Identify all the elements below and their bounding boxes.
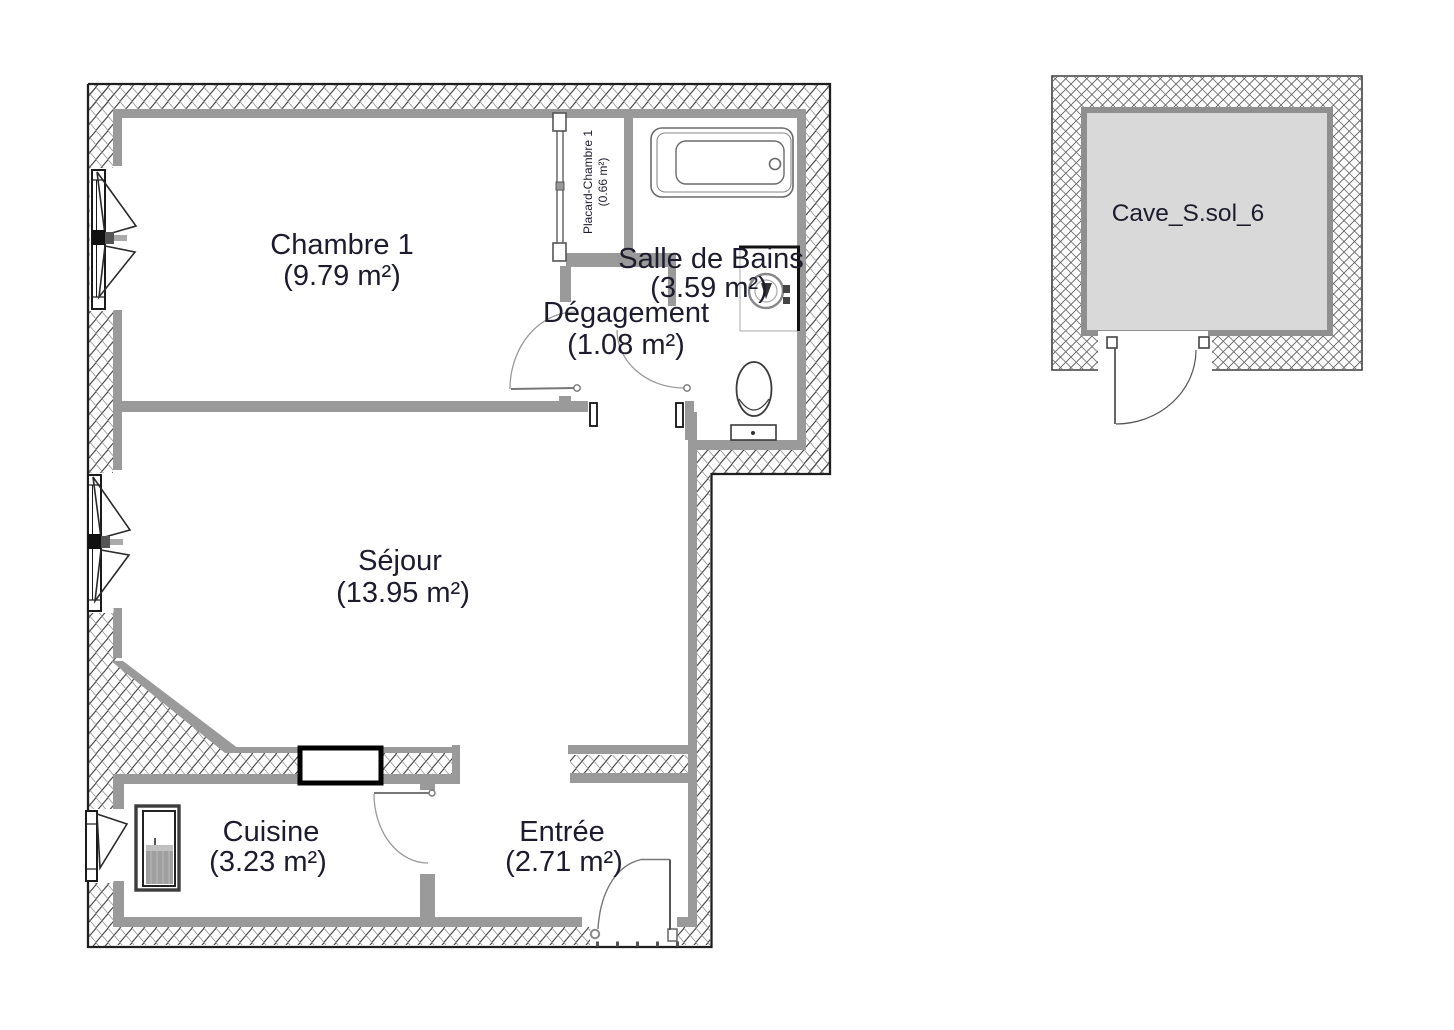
- svg-text:Cave_S.sol_6: Cave_S.sol_6: [1112, 200, 1265, 227]
- svg-text:Entrée: Entrée: [519, 816, 604, 848]
- svg-text:(3.23 m²): (3.23 m²): [209, 846, 327, 878]
- svg-text:(9.79 m²): (9.79 m²): [283, 260, 401, 292]
- svg-text:Chambre 1: Chambre 1: [270, 229, 413, 261]
- svg-text:(0.66 m²): (0.66 m²): [596, 158, 610, 207]
- svg-text:Dégagement: Dégagement: [543, 297, 709, 329]
- svg-text:(1.08 m²): (1.08 m²): [567, 329, 685, 361]
- svg-text:(13.95 m²): (13.95 m²): [336, 577, 470, 609]
- svg-text:Placard-Chambre 1: Placard-Chambre 1: [581, 130, 595, 234]
- svg-text:(2.71 m²): (2.71 m²): [505, 846, 623, 878]
- svg-text:Séjour: Séjour: [358, 545, 442, 577]
- svg-text:Salle de Bains: Salle de Bains: [618, 243, 803, 275]
- svg-text:Cuisine: Cuisine: [223, 816, 320, 848]
